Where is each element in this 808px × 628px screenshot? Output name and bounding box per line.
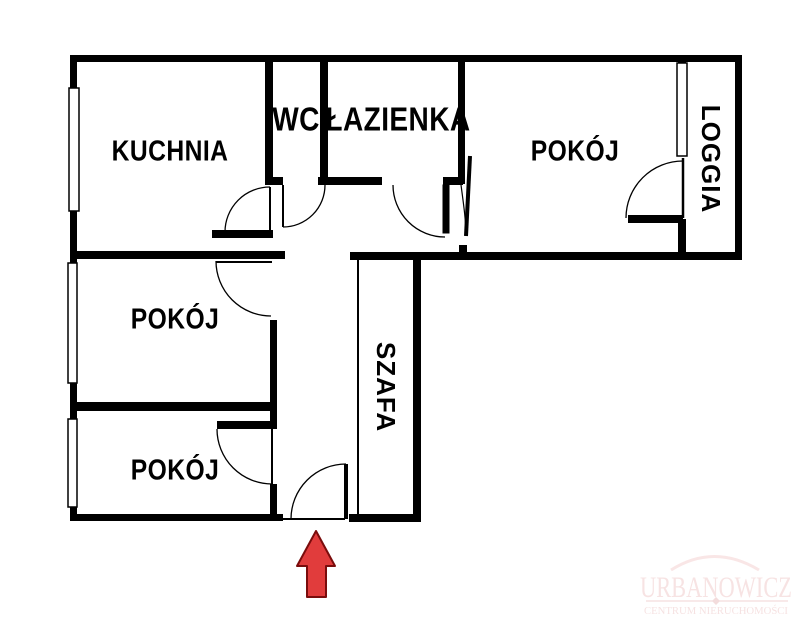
window-room-middle (68, 263, 77, 383)
floor-plan-drawing: URBANOWICZ CENTRUM NIERUCHOMOŚCI (0, 0, 808, 628)
doors (216, 156, 683, 519)
wall-szafa-left-thin (357, 259, 359, 514)
wall-hall-left-lower (270, 484, 277, 521)
wall-outer-top (70, 55, 742, 62)
door-arc-room-middle (216, 261, 271, 316)
door-arc-entrance (291, 464, 346, 519)
watermark-tagline: CENTRUM NIERUCHOMOŚCI (644, 605, 788, 617)
room-label-szafa: SZAFA (373, 342, 399, 432)
wall-loggia-stub (628, 215, 683, 223)
entrance-arrow-icon (297, 531, 335, 597)
room-label-wc: WC (272, 103, 320, 136)
wall-rooms-divider (70, 402, 277, 411)
wall-room-stub (217, 421, 272, 429)
entrance-threshold-line (283, 518, 345, 520)
door-arc-bathroom (393, 185, 445, 237)
door-arc-wc (283, 185, 325, 227)
room-label-pokoj-top: POKÓJ (531, 138, 619, 167)
room-label-kuchnia: KUCHNIA (112, 138, 229, 167)
wall-kitchen-stub (212, 230, 273, 238)
floor-plan: URBANOWICZ CENTRUM NIERUCHOMOŚCI (0, 0, 808, 628)
wall-door-hinge-tick (459, 245, 467, 254)
watermark: URBANOWICZ CENTRUM NIERUCHOMOŚCI (640, 557, 792, 618)
wall-szafa-right (413, 252, 421, 521)
window-loggia (677, 63, 687, 156)
wall-outer-bottom-left (70, 514, 283, 521)
room-label-lazienka: ŁAZIENKA (325, 103, 470, 136)
door-leaf-bathroom (443, 185, 449, 233)
room-label-pokoj-middle: POKÓJ (131, 306, 219, 335)
door-leaf-room-top (466, 156, 470, 236)
watermark-swoosh-icon (671, 557, 759, 571)
wall-wc-bottom-a (265, 177, 283, 185)
wall-outer-right (735, 55, 742, 260)
door-arc-room-bottom (217, 429, 272, 484)
wall-bathroom-bottom-b (443, 177, 463, 185)
wall-szafa-bottom (349, 514, 421, 522)
wall-kitchen-bottom (70, 251, 285, 259)
door-arc-room-top (461, 185, 466, 236)
wall-hall-left-upper (270, 320, 277, 429)
door-arc-loggia (626, 161, 683, 218)
door-arc-kitchen (225, 187, 270, 232)
room-label-loggia: LOGGIA (698, 105, 724, 214)
window-room-bottom (68, 419, 77, 507)
room-label-pokoj-bottom: POKÓJ (131, 457, 219, 486)
wall-loggia-divider-bottom (678, 219, 686, 260)
window-kitchen (69, 88, 79, 211)
wall-bathroom-bottom (318, 177, 382, 185)
